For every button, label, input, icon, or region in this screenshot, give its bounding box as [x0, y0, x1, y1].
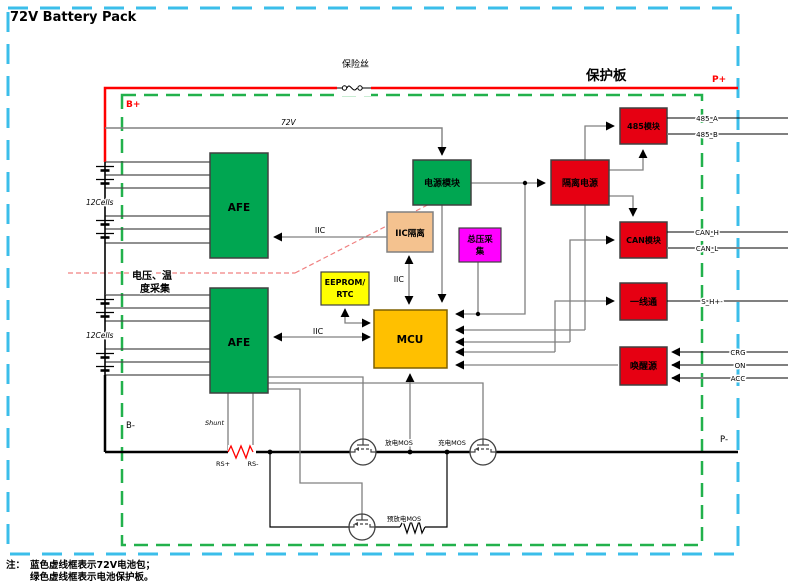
p-plus-label: P+: [712, 75, 726, 85]
block-iic-isolation: IIC隔离: [387, 212, 433, 252]
sampling-label-1: 电压、温: [132, 269, 172, 282]
eeprom-label-1: EEPROM/: [325, 278, 366, 287]
fuse-icon: [337, 80, 371, 96]
mcu-to-can-wire: [570, 240, 614, 342]
eeprom-wire-to-mcu: [345, 318, 370, 323]
afe-bottom-label: AFE: [228, 337, 250, 349]
b-plus-label: B+: [126, 100, 140, 110]
block-eeprom-rtc: EEPROM/ RTC: [321, 272, 369, 305]
discharge-mos-label: 放电MOS: [385, 438, 413, 447]
iic-isolation-label: IIC隔离: [395, 228, 425, 239]
afe-top-label: AFE: [228, 202, 250, 214]
port-can-l: CAN_L: [696, 245, 718, 253]
iic-mcu-label: IIC: [394, 275, 405, 284]
power-module-label: 电源模块: [424, 177, 461, 189]
battery-stack-bottom: [96, 295, 210, 452]
port-485-b: 485_B: [696, 131, 718, 139]
port-s-line: S_H+-: [701, 298, 723, 306]
iic-afe1-label: IIC: [315, 226, 326, 235]
block-wake-source: 唤醒源: [620, 347, 667, 385]
shunt-resistor: [228, 445, 256, 459]
shunt-label: Shunt: [205, 419, 224, 427]
port-on: ON: [735, 362, 746, 370]
block-isolated-power: 隔离电源: [551, 160, 609, 205]
protection-board-label: 保护板: [585, 67, 627, 84]
junction-dot: [523, 181, 527, 185]
port-acc: ACC: [731, 375, 746, 383]
note-prefix: 注：: [6, 559, 25, 571]
eeprom-label-2: RTC: [336, 290, 353, 299]
sampling-label-2: 度采集: [140, 282, 171, 295]
rs-plus-label: RS+: [216, 460, 230, 468]
junction-dot: [408, 450, 413, 455]
mcu-label: MCU: [397, 334, 424, 346]
cells-bottom-label: 12Cells: [86, 331, 114, 340]
mcu-to-485-wire: [585, 126, 614, 330]
discharge-mosfet-symbol: [350, 439, 376, 465]
72v-feed-wire: [105, 128, 442, 155]
gate-wire-discharge: [268, 377, 363, 439]
72v-label: 72V: [281, 118, 297, 127]
charge-mos-label: 充电MOS: [438, 438, 466, 447]
diagram-title: 72V Battery Pack: [10, 10, 137, 25]
block-afe-top: AFE: [210, 153, 268, 258]
wake-source-label: 唤醒源: [630, 360, 657, 372]
external-port-lines: [667, 118, 788, 378]
block-mcu: MCU: [374, 310, 447, 368]
isopower-to-485-wire: [609, 150, 643, 170]
predischarge-mosfet-symbol: [349, 514, 375, 540]
fuse-label: 保险丝: [342, 58, 369, 70]
cells-top-label: 12Cells: [86, 198, 114, 207]
p-minus-label: P-: [720, 435, 728, 445]
battery-pack-boundary: [8, 8, 738, 554]
can-module-label: CAN模块: [626, 235, 662, 245]
note-line-1: 蓝色虚线框表示72V电池包；: [30, 559, 155, 571]
total-voltage-label-1: 总压采: [467, 234, 493, 245]
charge-mosfet-symbol: [470, 439, 496, 465]
block-onewire: 一线通: [620, 283, 667, 320]
iic-afe2-label: IIC: [313, 327, 324, 336]
block-total-voltage: 总压采 集: [459, 228, 501, 262]
total-voltage-label-2: 集: [475, 246, 485, 257]
block-485-module: 485模块: [620, 108, 667, 144]
port-can-h: CAN_H: [695, 229, 719, 237]
rs-minus-label: RS-: [248, 460, 260, 468]
isolated-power-label: 隔离电源: [562, 177, 598, 189]
predischarge-mos-label: 预放电MOS: [387, 514, 421, 523]
battery-pack-schematic: AFE AFE 电源模块 隔离电源 IIC隔离 总压采 集 EEPROM/ RT…: [0, 0, 796, 584]
isopower-to-can-wire: [609, 196, 633, 216]
485-module-label: 485模块: [627, 121, 661, 131]
junction-dot: [476, 312, 480, 316]
note-line-2: 绿色虚线框表示电池保护板。: [30, 571, 154, 583]
onewire-label: 一线通: [630, 296, 657, 308]
port-485-a: 485_A: [696, 115, 718, 123]
block-can-module: CAN模块: [620, 222, 667, 258]
port-chg: CRG: [730, 349, 745, 357]
b-minus-label: B-: [126, 421, 135, 431]
block-afe-bottom: AFE: [210, 288, 268, 393]
schematic-canvas: AFE AFE 电源模块 隔离电源 IIC隔离 总压采 集 EEPROM/ RT…: [0, 0, 796, 584]
block-power-module: 电源模块: [413, 160, 471, 205]
